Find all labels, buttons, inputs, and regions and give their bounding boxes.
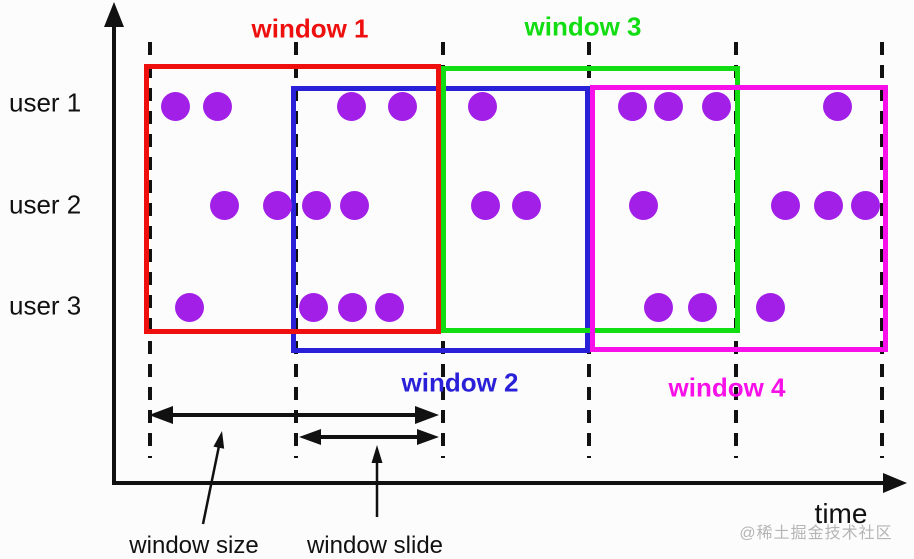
window-size-leader-arrow: [203, 431, 224, 524]
window-size-label: window size: [129, 532, 258, 559]
user-3-label: user 3: [9, 291, 81, 322]
window-4-label: window 4: [669, 373, 786, 404]
watermark: @稀土掘金技术社区: [739, 519, 892, 543]
user-2-label: user 2: [9, 190, 81, 221]
window-2-label: window 2: [402, 368, 519, 399]
window-slide-label: window slide: [307, 532, 443, 559]
x-axis-arrowhead-icon: [883, 473, 907, 493]
user-1-label: user 1: [9, 88, 81, 119]
window-3-label: window 3: [525, 12, 642, 43]
window-1-box: [144, 64, 441, 334]
window-1-label: window 1: [252, 14, 369, 45]
sliding-window-diagram: window 1 window 3 window 2 window 4 user…: [0, 0, 914, 559]
y-axis-arrowhead-icon: [104, 2, 124, 27]
window-4-box: [590, 85, 888, 352]
window-slide-arrow: [299, 429, 439, 445]
